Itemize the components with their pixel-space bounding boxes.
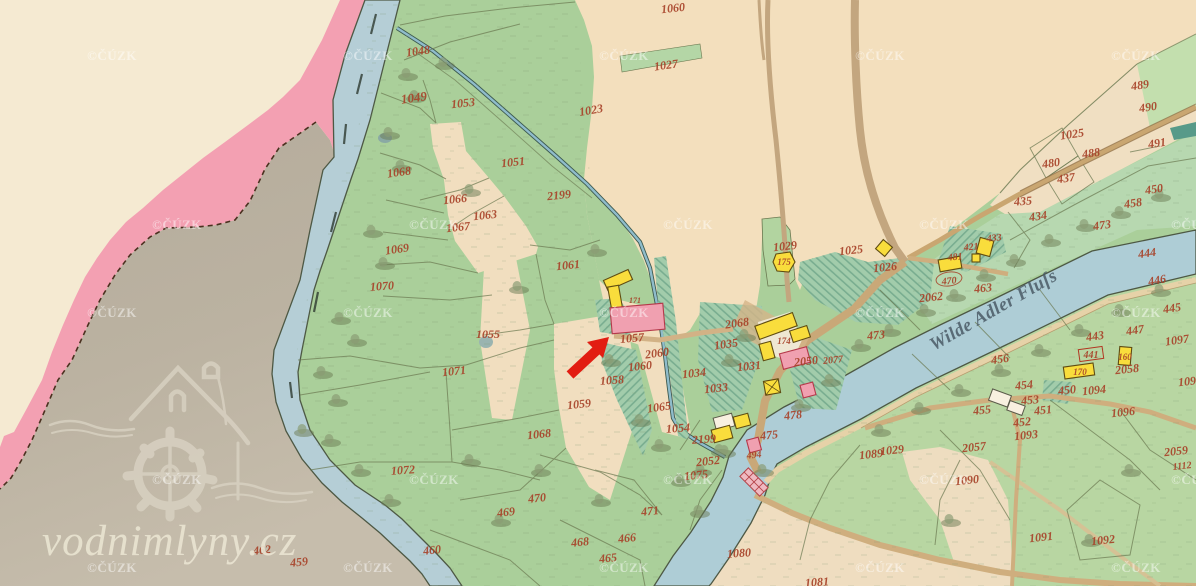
svg-text:1029: 1029 [879, 442, 904, 458]
svg-text:454: 454 [1013, 377, 1033, 393]
svg-text:1034: 1034 [681, 365, 706, 381]
svg-text:470: 470 [526, 490, 546, 506]
svg-text:1058: 1058 [600, 372, 625, 388]
svg-text:2058: 2058 [1113, 361, 1139, 378]
svg-text:450: 450 [1143, 181, 1164, 198]
svg-text:1070: 1070 [370, 278, 395, 294]
svg-text:©ČÚZK: ©ČÚZK [599, 305, 649, 320]
svg-text:1093: 1093 [1013, 427, 1038, 443]
svg-text:455: 455 [971, 402, 991, 418]
svg-text:©ČÚZK: ©ČÚZK [599, 48, 649, 63]
svg-text:1081: 1081 [805, 574, 830, 586]
svg-text:441: 441 [1083, 350, 1099, 361]
svg-text:©ČÚZK: ©ČÚZK [343, 305, 393, 320]
svg-text:©ČÚZK: ©ČÚZK [343, 560, 393, 575]
svg-text:©ČÚZK: ©ČÚZK [1171, 472, 1196, 487]
svg-text:1063: 1063 [472, 207, 497, 223]
svg-text:470: 470 [940, 275, 957, 288]
svg-text:433: 433 [985, 232, 1002, 245]
svg-text:2062: 2062 [917, 289, 943, 306]
svg-text:174: 174 [777, 336, 791, 346]
svg-text:©ČÚZK: ©ČÚZK [1171, 217, 1196, 232]
svg-text:1060: 1060 [627, 358, 652, 374]
svg-text:421: 421 [962, 241, 979, 254]
svg-text:©ČÚZK: ©ČÚZK [152, 217, 202, 232]
svg-text:444: 444 [1136, 245, 1157, 262]
svg-text:1059: 1059 [566, 396, 591, 412]
svg-text:447: 447 [1124, 322, 1146, 339]
svg-text:478: 478 [782, 407, 802, 423]
svg-text:©ČÚZK: ©ČÚZK [855, 48, 905, 63]
svg-text:471: 471 [639, 503, 659, 519]
svg-text:1091: 1091 [1028, 529, 1053, 545]
svg-text:460: 460 [421, 542, 441, 558]
svg-text:488: 488 [1080, 145, 1101, 162]
svg-text:1051: 1051 [500, 154, 525, 170]
svg-text:450: 450 [1056, 382, 1076, 398]
svg-text:1053: 1053 [450, 95, 475, 111]
svg-text:175: 175 [777, 257, 791, 267]
svg-text:©ČÚZK: ©ČÚZK [663, 217, 713, 232]
svg-text:1060: 1060 [660, 0, 685, 16]
svg-text:©ČÚZK: ©ČÚZK [1111, 48, 1161, 63]
svg-text:1054: 1054 [666, 420, 691, 436]
svg-text:©ČÚZK: ©ČÚZK [855, 560, 905, 575]
svg-text:435: 435 [1013, 193, 1033, 208]
svg-text:©ČÚZK: ©ČÚZK [855, 305, 905, 320]
svg-text:1094: 1094 [1081, 382, 1106, 398]
svg-text:1112: 1112 [1172, 460, 1192, 473]
svg-text:1066: 1066 [442, 191, 467, 207]
svg-text:171: 171 [629, 296, 641, 305]
svg-text:490: 490 [1137, 99, 1158, 116]
svg-text:443: 443 [1084, 328, 1105, 345]
svg-text:2057: 2057 [960, 439, 987, 456]
svg-text:445: 445 [1161, 300, 1182, 317]
svg-text:489: 489 [1129, 77, 1150, 94]
svg-text:160: 160 [1118, 352, 1132, 362]
svg-text:434: 434 [1027, 208, 1048, 225]
svg-text:©ČÚZK: ©ČÚZK [663, 472, 713, 487]
svg-text:469: 469 [495, 504, 515, 520]
svg-text:2077: 2077 [822, 354, 845, 367]
svg-text:2059: 2059 [1162, 443, 1188, 460]
svg-text:463: 463 [972, 280, 992, 296]
svg-text:©ČÚZK: ©ČÚZK [1111, 560, 1161, 575]
svg-text:1080: 1080 [727, 545, 752, 561]
svg-text:475: 475 [758, 427, 778, 443]
svg-text:1033: 1033 [703, 380, 728, 396]
svg-text:©ČÚZK: ©ČÚZK [919, 217, 969, 232]
svg-text:473: 473 [865, 327, 885, 343]
svg-text:©ČÚZK: ©ČÚZK [87, 48, 137, 63]
svg-text:1095: 1095 [1177, 373, 1196, 389]
svg-text:©ČÚZK: ©ČÚZK [152, 472, 202, 487]
svg-text:1061: 1061 [555, 257, 580, 273]
svg-text:1071: 1071 [441, 363, 466, 379]
svg-text:1025: 1025 [838, 242, 863, 258]
svg-text:1068: 1068 [526, 426, 551, 442]
svg-text:456: 456 [989, 351, 1010, 368]
svg-text:2050: 2050 [792, 353, 818, 370]
svg-text:170: 170 [1073, 367, 1087, 377]
svg-text:2199: 2199 [545, 187, 571, 204]
svg-text:vodnimlyny.cz: vodnimlyny.cz [42, 518, 297, 565]
svg-text:1029: 1029 [772, 238, 797, 254]
svg-text:468: 468 [569, 534, 589, 550]
svg-text:©ČÚZK: ©ČÚZK [87, 560, 137, 575]
svg-text:458: 458 [1122, 195, 1143, 212]
svg-text:480: 480 [1040, 155, 1061, 172]
svg-text:494: 494 [745, 449, 762, 462]
svg-text:1031: 1031 [736, 358, 761, 374]
svg-text:437: 437 [1055, 170, 1077, 187]
svg-text:1057: 1057 [619, 330, 645, 346]
svg-text:©ČÚZK: ©ČÚZK [1111, 305, 1161, 320]
svg-text:©ČÚZK: ©ČÚZK [919, 472, 969, 487]
svg-text:473: 473 [1091, 217, 1112, 234]
svg-text:©ČÚZK: ©ČÚZK [599, 560, 649, 575]
svg-text:©ČÚZK: ©ČÚZK [409, 472, 459, 487]
svg-text:©ČÚZK: ©ČÚZK [409, 217, 459, 232]
svg-text:491: 491 [1146, 135, 1167, 152]
svg-text:2199: 2199 [691, 431, 717, 447]
svg-text:466: 466 [616, 530, 636, 546]
svg-text:481: 481 [946, 251, 963, 264]
svg-text:©ČÚZK: ©ČÚZK [343, 48, 393, 63]
svg-text:1055: 1055 [476, 327, 500, 341]
svg-text:1026: 1026 [872, 259, 897, 275]
svg-text:1096: 1096 [1110, 404, 1135, 420]
svg-text:©ČÚZK: ©ČÚZK [87, 305, 137, 320]
svg-text:1092: 1092 [1090, 532, 1115, 548]
svg-text:451: 451 [1032, 402, 1052, 418]
